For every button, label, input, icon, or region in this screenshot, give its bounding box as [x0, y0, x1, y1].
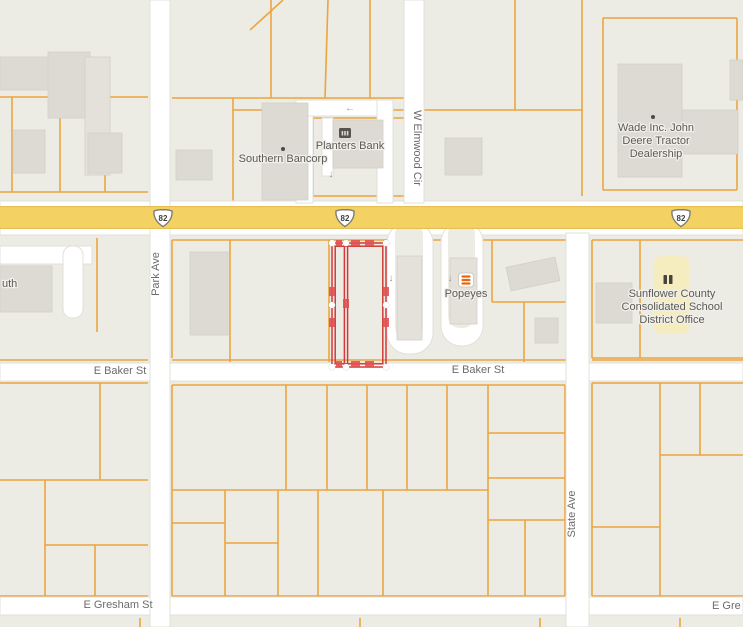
parcel-tick	[351, 361, 360, 367]
building-footprint	[190, 252, 228, 335]
poi-label[interactable]: Consolidated School	[622, 301, 723, 313]
poi-label[interactable]: Sunflower County	[629, 288, 716, 300]
state-ave-road	[566, 233, 589, 627]
building-footprint	[262, 103, 308, 200]
one-way-arrow-icon: ↓	[448, 273, 453, 284]
map-canvas[interactable]: ↓↓↓←828282Southern BancorpPlanters BankP…	[0, 0, 743, 627]
parcel-tick	[329, 287, 335, 296]
street-label: Park Ave	[150, 252, 162, 296]
parcel-tick	[336, 361, 342, 367]
popeyes-icon[interactable]	[459, 273, 474, 287]
parcel-vertex-handle[interactable]	[383, 364, 390, 371]
parcel-tick	[329, 318, 335, 327]
shield-number: 82	[677, 214, 686, 223]
map-svg: ↓↓↓←828282Southern BancorpPlanters BankP…	[0, 0, 743, 627]
parcel-tick	[383, 287, 389, 296]
building-footprint	[48, 52, 90, 118]
poi-cut-off-poi[interactable]: uth	[2, 278, 17, 290]
park-ave-road	[150, 0, 170, 627]
one-way-arrow-icon: ←	[345, 103, 355, 114]
parcel-vertex-handle[interactable]	[329, 302, 336, 309]
poi-dot-icon[interactable]	[651, 115, 655, 119]
parcel-vertex-handle[interactable]	[329, 240, 336, 247]
building-footprint	[397, 256, 422, 340]
building-footprint	[445, 138, 482, 175]
poi-label[interactable]: Southern Bancorp	[239, 153, 328, 165]
parcel-vertex-handle[interactable]	[329, 364, 336, 371]
building-footprint	[730, 60, 743, 100]
street-label: E Baker St	[452, 364, 505, 376]
one-way-arrow-icon: ↓	[329, 169, 334, 180]
parcel-tick	[336, 240, 342, 246]
building-footprint	[88, 133, 122, 173]
poi-label[interactable]: Wade Inc. John	[618, 122, 694, 134]
street-label: E Baker St	[94, 365, 147, 377]
street-label: State Ave	[566, 491, 578, 538]
building-footprint	[618, 64, 682, 177]
bank-icon[interactable]	[339, 128, 351, 138]
parcel-vertex-handle[interactable]	[383, 240, 390, 247]
parcel-vertex-handle[interactable]	[343, 240, 350, 247]
parcel-tick	[383, 318, 389, 327]
parcel-tick	[351, 240, 360, 246]
street-label: W Elmwood Cir	[411, 110, 423, 186]
poi-label[interactable]: Dealership	[630, 148, 683, 160]
poi-label[interactable]: District Office	[639, 314, 704, 326]
building-footprint	[13, 130, 45, 173]
one-way-arrow-icon: ↓	[389, 273, 394, 284]
poi-label[interactable]: Deere Tractor	[622, 135, 690, 147]
parcel-vertex-handle[interactable]	[383, 302, 390, 309]
parcel-tick	[365, 240, 374, 246]
street-label: E Gresham St	[83, 599, 152, 611]
shield-number: 82	[341, 214, 350, 223]
street-stub	[63, 246, 83, 318]
poi-dot-icon[interactable]	[281, 147, 285, 151]
parcel-vertex-handle[interactable]	[343, 364, 350, 371]
building-footprint	[535, 318, 558, 343]
street-label: E Gre	[712, 600, 741, 612]
building-footprint	[176, 150, 212, 180]
poi-label[interactable]: Planters Bank	[316, 140, 385, 152]
parcel-tick	[343, 299, 349, 308]
us-82-highway-band	[0, 206, 743, 229]
poi-label[interactable]: uth	[2, 278, 17, 290]
shield-number: 82	[159, 214, 168, 223]
poi-label[interactable]: Popeyes	[445, 288, 488, 300]
parcel-tick	[365, 361, 374, 367]
